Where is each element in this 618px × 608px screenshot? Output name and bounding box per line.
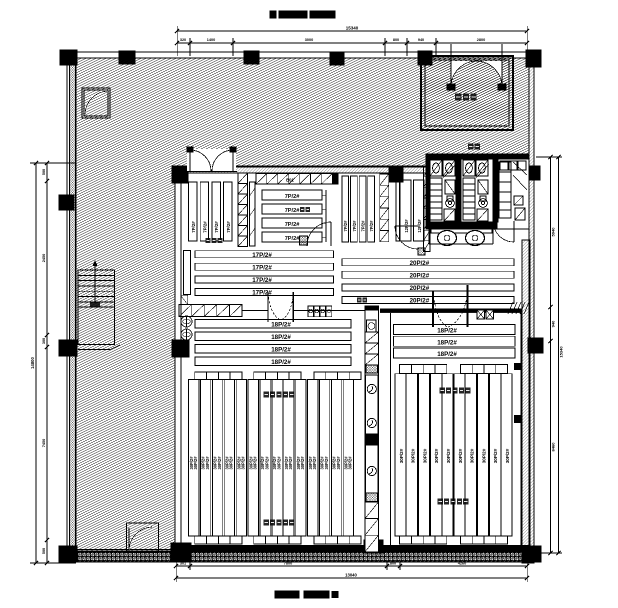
svg-text:30P/2#: 30P/2#: [324, 456, 329, 470]
svg-text:30P/2#: 30P/2#: [493, 448, 498, 463]
svg-text:7P/2#: 7P/2#: [285, 194, 301, 200]
svg-text:3000: 3000: [305, 38, 313, 42]
svg-text:7P/2#: 7P/2#: [360, 220, 365, 232]
svg-text:30P/2#: 30P/2#: [422, 448, 427, 463]
svg-text:30P/2#: 30P/2#: [205, 456, 210, 470]
svg-text:7P/2#: 7P/2#: [226, 221, 231, 233]
svg-text:15340: 15340: [559, 346, 564, 358]
svg-text:30P/2#: 30P/2#: [193, 456, 198, 470]
svg-text:17P/2#: 17P/2#: [252, 277, 272, 284]
svg-text:30P/2#: 30P/2#: [276, 456, 281, 470]
svg-text:30P/2#: 30P/2#: [458, 448, 463, 463]
svg-text:20P/2#: 20P/2#: [410, 298, 430, 305]
svg-text:7P/2#: 7P/2#: [285, 208, 301, 214]
svg-text:15340: 15340: [346, 26, 359, 31]
svg-text:30P/2#: 30P/2#: [446, 448, 451, 463]
svg-text:30P/2#: 30P/2#: [336, 456, 341, 470]
svg-text:18P/2#: 18P/2#: [437, 351, 457, 358]
svg-text:30P/2#: 30P/2#: [434, 448, 439, 463]
svg-text:7P/2#: 7P/2#: [352, 220, 357, 232]
svg-text:30P/2#: 30P/2#: [253, 456, 258, 470]
svg-text:2450: 2450: [42, 254, 46, 262]
svg-text:800: 800: [393, 38, 399, 42]
svg-text:500: 500: [42, 548, 46, 554]
svg-text:7800: 7800: [284, 562, 292, 566]
svg-text:18P/2#: 18P/2#: [437, 328, 457, 335]
svg-text:1400: 1400: [207, 38, 215, 42]
svg-text:30P/2#: 30P/2#: [217, 456, 222, 470]
svg-text:7P/2#: 7P/2#: [369, 220, 374, 232]
svg-text:17P/2#: 17P/2#: [252, 265, 272, 272]
svg-text:30P/2#: 30P/2#: [505, 448, 510, 463]
svg-text:4260: 4260: [458, 562, 466, 566]
svg-text:20P/2#: 20P/2#: [410, 285, 430, 292]
svg-text:30P/2#: 30P/2#: [288, 456, 293, 470]
svg-text:7P/2#: 7P/2#: [203, 221, 208, 233]
svg-text:5940: 5940: [551, 227, 556, 237]
svg-text:B01: B01: [286, 178, 294, 183]
svg-text:30P/2#: 30P/2#: [470, 448, 475, 463]
svg-text:30P/2#: 30P/2#: [481, 448, 486, 463]
svg-text:30P/2#: 30P/2#: [264, 456, 269, 470]
svg-text:7P/2#: 7P/2#: [285, 236, 301, 242]
svg-text:301: 301: [180, 562, 186, 566]
svg-text:18P/2#: 18P/2#: [271, 322, 291, 329]
svg-text:7P/2#: 7P/2#: [285, 222, 301, 228]
svg-text:7450: 7450: [42, 439, 46, 447]
svg-text:500: 500: [42, 169, 46, 175]
svg-text:7P/2#: 7P/2#: [191, 221, 196, 233]
svg-text:18P/2#: 18P/2#: [271, 334, 291, 341]
svg-text:30P/2#: 30P/2#: [312, 456, 317, 470]
svg-text:320: 320: [180, 38, 186, 42]
svg-text:18P/2#: 18P/2#: [271, 359, 291, 366]
svg-text:30P/2#: 30P/2#: [411, 448, 416, 463]
svg-text:300: 300: [42, 338, 46, 344]
svg-text:18P/2#: 18P/2#: [271, 347, 291, 354]
svg-text:30P/2#: 30P/2#: [229, 456, 234, 470]
svg-text:17P/2#: 17P/2#: [252, 252, 272, 259]
svg-text:940: 940: [551, 320, 556, 327]
svg-text:13040: 13040: [345, 573, 357, 578]
svg-text:30P/2#: 30P/2#: [348, 456, 353, 470]
svg-text:30P/2#: 30P/2#: [300, 456, 305, 470]
svg-text:7P/2#: 7P/2#: [343, 220, 348, 232]
svg-text:2800: 2800: [477, 38, 485, 42]
svg-text:8460: 8460: [551, 442, 556, 452]
svg-text:30P/2#: 30P/2#: [399, 448, 404, 463]
svg-text:7P/2#: 7P/2#: [214, 221, 219, 233]
svg-text:20P/2#: 20P/2#: [410, 260, 430, 267]
svg-text:17P/2#: 17P/2#: [252, 290, 272, 297]
svg-text:20P/2#: 20P/2#: [410, 273, 430, 280]
svg-text:18P/2#: 18P/2#: [437, 339, 457, 346]
svg-text:940: 940: [418, 38, 424, 42]
svg-text:14800: 14800: [30, 357, 35, 369]
svg-text:800: 800: [390, 562, 396, 566]
svg-text:30P/2#: 30P/2#: [241, 456, 246, 470]
